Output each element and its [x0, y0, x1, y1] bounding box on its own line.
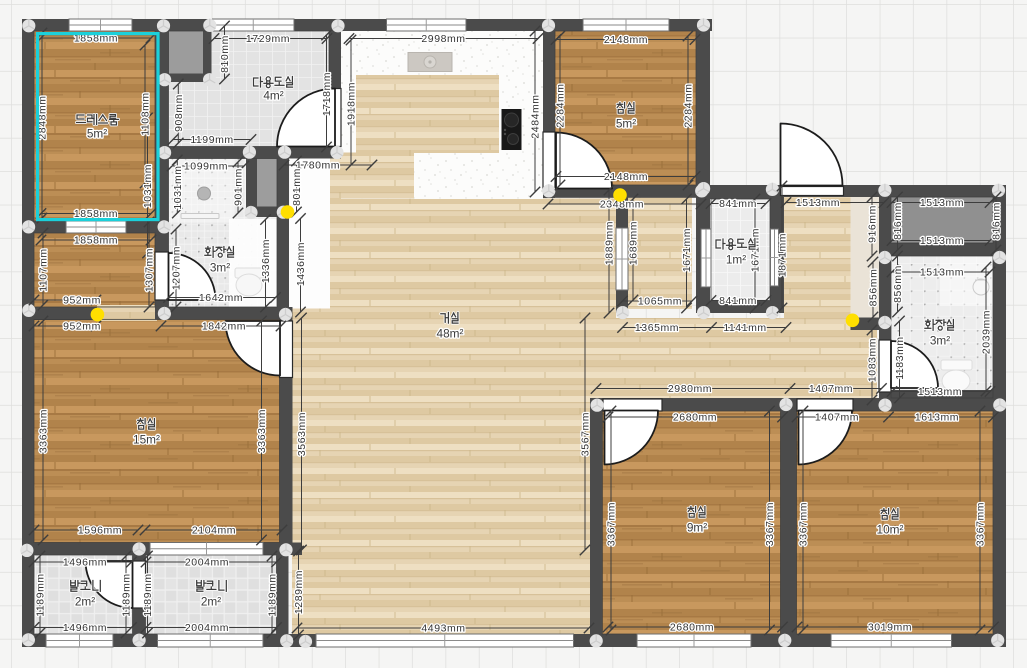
- svg-text:952mm: 952mm: [63, 321, 101, 333]
- svg-text:1407mm: 1407mm: [809, 383, 853, 395]
- svg-text:856mm: 856mm: [868, 269, 880, 307]
- svg-text:9m²: 9m²: [687, 521, 707, 535]
- svg-text:1496mm: 1496mm: [63, 622, 107, 634]
- svg-text:2148mm: 2148mm: [604, 34, 648, 46]
- svg-text:5m²: 5m²: [616, 117, 636, 131]
- svg-text:2039mm: 2039mm: [981, 310, 993, 354]
- svg-text:1141mm: 1141mm: [723, 322, 766, 334]
- svg-text:1871mm: 1871mm: [777, 233, 789, 277]
- svg-text:2m²: 2m²: [201, 595, 221, 609]
- svg-text:4m²: 4m²: [263, 89, 283, 103]
- svg-text:1718mm: 1718mm: [321, 72, 333, 116]
- svg-text:3363mm: 3363mm: [38, 409, 50, 453]
- svg-text:1189mm: 1189mm: [35, 573, 47, 616]
- svg-text:10m²: 10m²: [877, 523, 904, 537]
- svg-text:1065mm: 1065mm: [638, 296, 682, 308]
- svg-text:2680mm: 2680mm: [673, 412, 717, 424]
- svg-text:856mm: 856mm: [892, 265, 904, 303]
- svg-text:1496mm: 1496mm: [63, 557, 107, 569]
- svg-text:1m²: 1m²: [726, 253, 746, 267]
- svg-text:3367mm: 3367mm: [764, 502, 776, 546]
- svg-text:2284mm: 2284mm: [683, 83, 695, 127]
- svg-text:3019mm: 3019mm: [868, 622, 912, 634]
- svg-text:3367mm: 3367mm: [606, 502, 618, 546]
- svg-text:1189mm: 1189mm: [267, 573, 279, 616]
- svg-text:908mm: 908mm: [173, 94, 185, 132]
- svg-text:2104mm: 2104mm: [192, 525, 236, 537]
- svg-text:1642mm: 1642mm: [199, 292, 243, 304]
- svg-text:1099mm: 1099mm: [184, 161, 228, 173]
- svg-text:1407mm: 1407mm: [815, 412, 859, 424]
- svg-text:1107mm: 1107mm: [38, 248, 50, 291]
- svg-text:3563mm: 3563mm: [296, 412, 308, 456]
- svg-text:801mm: 801mm: [291, 168, 303, 206]
- svg-text:1199mm: 1199mm: [190, 134, 233, 146]
- svg-text:1671mm: 1671mm: [681, 228, 693, 272]
- svg-text:1513mm: 1513mm: [920, 197, 964, 209]
- svg-text:3m²: 3m²: [210, 261, 230, 275]
- svg-text:1889mm: 1889mm: [604, 221, 616, 265]
- svg-text:1189mm: 1189mm: [121, 573, 133, 616]
- svg-text:816mm: 816mm: [892, 202, 904, 240]
- svg-text:2980mm: 2980mm: [668, 383, 712, 395]
- svg-text:1689mm: 1689mm: [628, 221, 640, 265]
- svg-text:1513mm: 1513mm: [920, 267, 964, 279]
- svg-text:1513mm: 1513mm: [918, 386, 962, 398]
- svg-text:1842mm: 1842mm: [202, 321, 246, 333]
- svg-text:841mm: 841mm: [719, 295, 757, 307]
- svg-text:3m²: 3m²: [930, 334, 950, 348]
- svg-text:1365mm: 1365mm: [635, 322, 679, 334]
- svg-text:1513mm: 1513mm: [920, 235, 964, 247]
- svg-text:2004mm: 2004mm: [185, 622, 229, 634]
- svg-text:1031mm: 1031mm: [172, 165, 184, 209]
- svg-text:2680mm: 2680mm: [670, 622, 714, 634]
- svg-text:1596mm: 1596mm: [78, 525, 122, 537]
- svg-text:1729mm: 1729mm: [246, 33, 290, 45]
- svg-text:15m²: 15m²: [133, 433, 160, 447]
- svg-text:1183mm: 1183mm: [894, 336, 906, 379]
- svg-text:1336mm: 1336mm: [260, 239, 272, 283]
- svg-text:2148mm: 2148mm: [604, 171, 648, 183]
- svg-text:952mm: 952mm: [63, 295, 101, 307]
- svg-text:2004mm: 2004mm: [185, 557, 229, 569]
- svg-text:5m²: 5m²: [87, 127, 107, 141]
- svg-text:1513mm: 1513mm: [796, 197, 840, 209]
- svg-text:901mm: 901mm: [233, 168, 245, 206]
- svg-text:1858mm: 1858mm: [74, 235, 118, 247]
- svg-text:1307mm: 1307mm: [144, 248, 156, 292]
- svg-text:810mm: 810mm: [219, 35, 231, 73]
- svg-text:1108mm: 1108mm: [140, 92, 152, 135]
- svg-text:48m²: 48m²: [437, 327, 464, 341]
- svg-text:1289mm: 1289mm: [293, 570, 305, 614]
- svg-text:1918mm: 1918mm: [346, 82, 358, 126]
- svg-text:2484mm: 2484mm: [530, 94, 542, 138]
- svg-text:2m²: 2m²: [75, 595, 95, 609]
- svg-text:916mm: 916mm: [867, 205, 879, 243]
- svg-text:3567mm: 3567mm: [580, 412, 592, 456]
- svg-text:2998mm: 2998mm: [421, 33, 465, 45]
- svg-text:2284mm: 2284mm: [555, 83, 567, 127]
- svg-text:841mm: 841mm: [719, 198, 757, 210]
- svg-text:1031mm: 1031mm: [142, 164, 154, 208]
- svg-text:816mm: 816mm: [991, 202, 1003, 240]
- svg-text:1613mm: 1613mm: [915, 412, 959, 424]
- svg-text:1207mm: 1207mm: [171, 246, 183, 290]
- svg-text:1083mm: 1083mm: [867, 338, 879, 382]
- svg-text:3367mm: 3367mm: [975, 502, 987, 546]
- svg-text:3363mm: 3363mm: [256, 409, 268, 453]
- svg-text:1189mm: 1189mm: [142, 573, 154, 616]
- svg-text:3367mm: 3367mm: [798, 502, 810, 546]
- svg-text:4493mm: 4493mm: [421, 623, 465, 635]
- svg-text:1436mm: 1436mm: [295, 242, 307, 286]
